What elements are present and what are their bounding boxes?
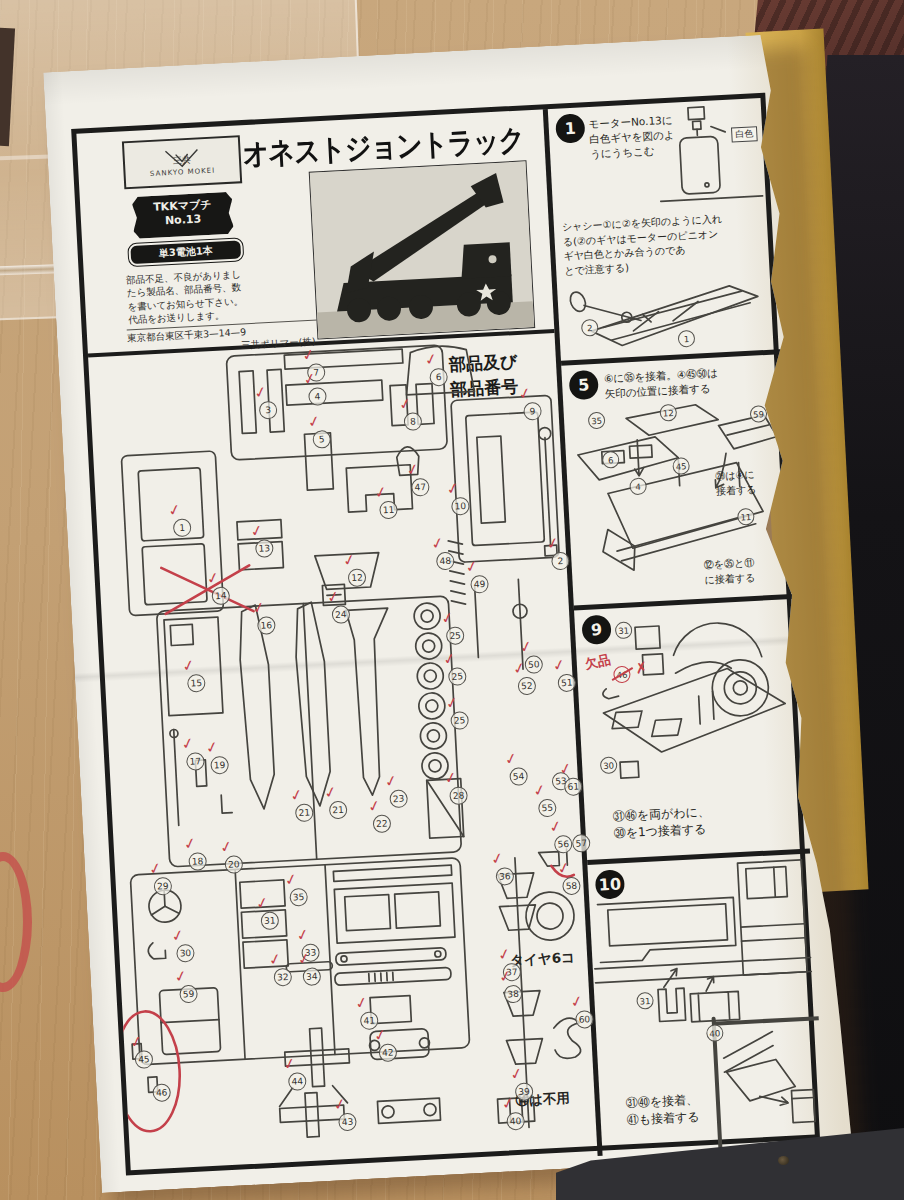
step-panel-1: 1 モーターNo.13に白色ギヤを図のようにうちこむ 白色 シャシー①に②を矢印 bbox=[548, 97, 784, 360]
part-marker-52: 52✓ bbox=[517, 677, 536, 696]
part-number: 6 bbox=[429, 368, 448, 387]
battery-badge: 単3電池1本 bbox=[130, 240, 241, 264]
part-marker-24: 24✓ bbox=[331, 605, 350, 624]
instruction-sheet: 三共 SANKYO MOKEI オネストジョントラック TKKマブチ No.13… bbox=[43, 33, 853, 1193]
part-marker-38: 38✓ bbox=[504, 985, 523, 1004]
part-label: 31 bbox=[636, 992, 654, 1010]
white-gear-label: 白色 bbox=[731, 126, 758, 142]
part-label: 12 bbox=[659, 404, 677, 422]
photo-scene: 三共 SANKYO MOKEI オネストジョントラック TKKマブチ No.13… bbox=[0, 0, 904, 1200]
part-number: 46 bbox=[152, 1083, 171, 1102]
part-marker-44: 44✓ bbox=[288, 1072, 307, 1091]
part-number: 59 bbox=[179, 985, 198, 1004]
part-number: 8 bbox=[403, 412, 422, 431]
part-number: 16 bbox=[257, 616, 276, 635]
part-number: 35 bbox=[289, 888, 308, 907]
red-wire bbox=[0, 852, 32, 992]
part-number: 31 bbox=[260, 911, 279, 930]
part-number: 11 bbox=[379, 501, 398, 520]
part-number: 20 bbox=[224, 855, 243, 874]
part-number: 22 bbox=[372, 814, 391, 833]
part-number: 44 bbox=[288, 1072, 307, 1091]
screw bbox=[778, 1156, 789, 1165]
part-marker-61: 61✓ bbox=[564, 777, 583, 796]
part-label: 6 bbox=[602, 451, 620, 469]
part-marker-4: 4✓ bbox=[308, 387, 327, 406]
part-number: 19 bbox=[210, 756, 229, 775]
part-number: 3 bbox=[259, 401, 278, 420]
part-number: 18 bbox=[188, 852, 207, 871]
part-number: 42 bbox=[378, 1043, 397, 1062]
maker-logo: 三共 SANKYO MOKEI bbox=[122, 135, 242, 189]
part-number: 4 bbox=[308, 387, 327, 406]
part-number: 23 bbox=[389, 789, 408, 808]
part-marker-3: 3✓ bbox=[259, 401, 278, 420]
part-number: 1 bbox=[173, 518, 192, 537]
part-marker-42: 42✓ bbox=[378, 1043, 397, 1062]
part-marker-16: 16✓ bbox=[257, 616, 276, 635]
part-number: 9 bbox=[523, 402, 542, 421]
part-marker-9: 9✓ bbox=[523, 402, 542, 421]
part-number: 40 bbox=[506, 1112, 525, 1131]
part-marker-56: 56✓ bbox=[554, 835, 573, 854]
part-number: 47 bbox=[411, 478, 430, 497]
part-number: 21 bbox=[329, 801, 348, 820]
step-panel-9: 9 31 46 bbox=[574, 599, 810, 860]
part-marker-36: 36✓ bbox=[495, 867, 514, 886]
chassis-label: 1 bbox=[678, 330, 696, 348]
part-number: 34 bbox=[302, 967, 321, 986]
part-marker-25: 25✓ bbox=[446, 626, 465, 645]
part-marker-18: 18✓ bbox=[188, 852, 207, 871]
part-marker-50: 50✓ bbox=[524, 655, 543, 674]
part-marker-25: 25✓ bbox=[450, 711, 469, 730]
part-marker-60: 60✓ bbox=[575, 1010, 594, 1029]
part-number: 21 bbox=[295, 803, 314, 822]
part-marker-58: 58✓ bbox=[562, 876, 581, 895]
part-marker-22: 22✓ bbox=[372, 814, 391, 833]
part-number: 28 bbox=[449, 786, 468, 805]
part-number: 58 bbox=[562, 876, 581, 895]
part-marker-34: 34✓ bbox=[302, 967, 321, 986]
part-number: 17 bbox=[186, 752, 205, 771]
part-number: 56 bbox=[554, 835, 573, 854]
part-number: 38 bbox=[504, 985, 523, 1004]
part-marker-48: 48✓ bbox=[436, 552, 455, 571]
part-marker-5: 5✓ bbox=[312, 430, 331, 449]
part-marker-10: 10✓ bbox=[451, 497, 470, 516]
part-marker-12: 12✓ bbox=[348, 568, 367, 587]
printed-frame: 三共 SANKYO MOKEI オネストジョントラック TKKマブチ No.13… bbox=[71, 93, 820, 1176]
step-number-1: 1 bbox=[555, 113, 585, 143]
part-label: 45 bbox=[672, 457, 690, 475]
part-marker-13: 13✓ bbox=[255, 539, 274, 558]
part-marker-28: 28✓ bbox=[449, 786, 468, 805]
part-marker-23: 23✓ bbox=[389, 789, 408, 808]
logo-kanji: 三共 bbox=[173, 154, 192, 168]
sprue-drawing bbox=[88, 337, 596, 1160]
part-number: 48 bbox=[436, 552, 455, 571]
part-number: 45 bbox=[134, 1050, 153, 1069]
part-marker-40: 40✓ bbox=[506, 1112, 525, 1131]
logo-subtitle: SANKYO MOKEI bbox=[150, 167, 216, 178]
part-marker-49: 49✓ bbox=[470, 575, 489, 594]
axle-label: 2 bbox=[581, 319, 599, 337]
part-number: 14 bbox=[211, 586, 230, 605]
part-marker-2: 2✓ bbox=[551, 552, 570, 571]
part-number: 25 bbox=[446, 626, 465, 645]
part-marker-25: 25✓ bbox=[448, 667, 467, 686]
part-number: 36 bbox=[495, 867, 514, 886]
part-label: 35 bbox=[588, 412, 606, 430]
part-marker-19: 19✓ bbox=[210, 756, 229, 775]
part-marker-21: 21✓ bbox=[329, 801, 348, 820]
step-number-5: 5 bbox=[569, 370, 599, 400]
part-marker-51: 51✓ bbox=[557, 673, 576, 692]
part-marker-54: 54✓ bbox=[509, 767, 528, 786]
part-number: 50 bbox=[524, 655, 543, 674]
part-label: 31 bbox=[615, 621, 633, 639]
part-number: 43 bbox=[338, 1112, 357, 1131]
part-number: 61 bbox=[564, 777, 583, 796]
part-marker-43: 43✓ bbox=[338, 1112, 357, 1131]
part-marker-32: 32✓ bbox=[273, 968, 292, 987]
part-marker-39: 39✓ bbox=[515, 1082, 534, 1101]
part-marker-47: 47✓ bbox=[411, 478, 430, 497]
part-number: 60 bbox=[575, 1010, 594, 1029]
part-label: 30 bbox=[600, 756, 618, 774]
part-marker-14: 14✓ bbox=[211, 586, 230, 605]
part-marker-20: 20✓ bbox=[224, 855, 243, 874]
motor-badge: TKKマブチ No.13 bbox=[132, 192, 234, 239]
part-label: 40 bbox=[706, 1024, 724, 1042]
part-number: 54 bbox=[509, 767, 528, 786]
part-number: 12 bbox=[348, 568, 367, 587]
part-marker-6: 6✓ bbox=[429, 368, 448, 387]
part-marker-21: 21✓ bbox=[295, 803, 314, 822]
part-marker-15: 15✓ bbox=[187, 674, 206, 693]
part-marker-31: 31✓ bbox=[260, 911, 279, 930]
part-label: 4 bbox=[629, 477, 647, 495]
part-marker-55: 55✓ bbox=[538, 799, 557, 818]
part-marker-45: 45✓ bbox=[134, 1050, 153, 1069]
parts-notice: 部品不足、不良がありまし たら製品名、部品番号、数 を書いてお知らせ下さい。 代… bbox=[126, 263, 319, 327]
part-number: 13 bbox=[255, 539, 274, 558]
part-number: 29 bbox=[153, 877, 172, 896]
part-marker-29: 29✓ bbox=[153, 877, 172, 896]
part-marker-1: 1✓ bbox=[173, 518, 192, 537]
part-number: 2 bbox=[551, 552, 570, 571]
part-label-crossed: 46 bbox=[613, 666, 631, 684]
part-number: 32 bbox=[273, 968, 292, 987]
part-marker-8: 8✓ bbox=[403, 412, 422, 431]
part-number: 30 bbox=[176, 944, 195, 963]
parts-diagram: タイヤ6コ ⑭は不用 7✓4✓6✓3✓5✓8✓9✓1✓13✓11✓47✓10✓1… bbox=[88, 337, 596, 1160]
part-number: 15 bbox=[187, 674, 206, 693]
part-number: 24 bbox=[331, 605, 350, 624]
part-number: 52 bbox=[517, 677, 536, 696]
part-number: 39 bbox=[515, 1082, 534, 1101]
part-number: 10 bbox=[451, 497, 470, 516]
part-marker-59: 59✓ bbox=[179, 985, 198, 1004]
box-photo-truck bbox=[309, 160, 535, 339]
part-marker-35: 35✓ bbox=[289, 888, 308, 907]
part-label: 59 bbox=[750, 405, 768, 423]
part-number: 25 bbox=[450, 711, 469, 730]
part-marker-17: 17✓ bbox=[186, 752, 205, 771]
part-marker-30: 30✓ bbox=[176, 944, 195, 963]
part-number: 55 bbox=[538, 799, 557, 818]
part-number: 5 bbox=[312, 430, 331, 449]
step-panel-5: 5 ⑥に㉟を接着。④㊺㊿は矢印の位置に接着する bbox=[561, 354, 796, 605]
part-label: 11 bbox=[737, 508, 755, 526]
part-number: 49 bbox=[470, 575, 489, 594]
step-panel-10: 10 bbox=[587, 853, 825, 1155]
part-number: 25 bbox=[448, 667, 467, 686]
part-marker-46: 46 bbox=[152, 1083, 171, 1102]
part-number: 51 bbox=[557, 673, 576, 692]
part-marker-11: 11✓ bbox=[379, 501, 398, 520]
